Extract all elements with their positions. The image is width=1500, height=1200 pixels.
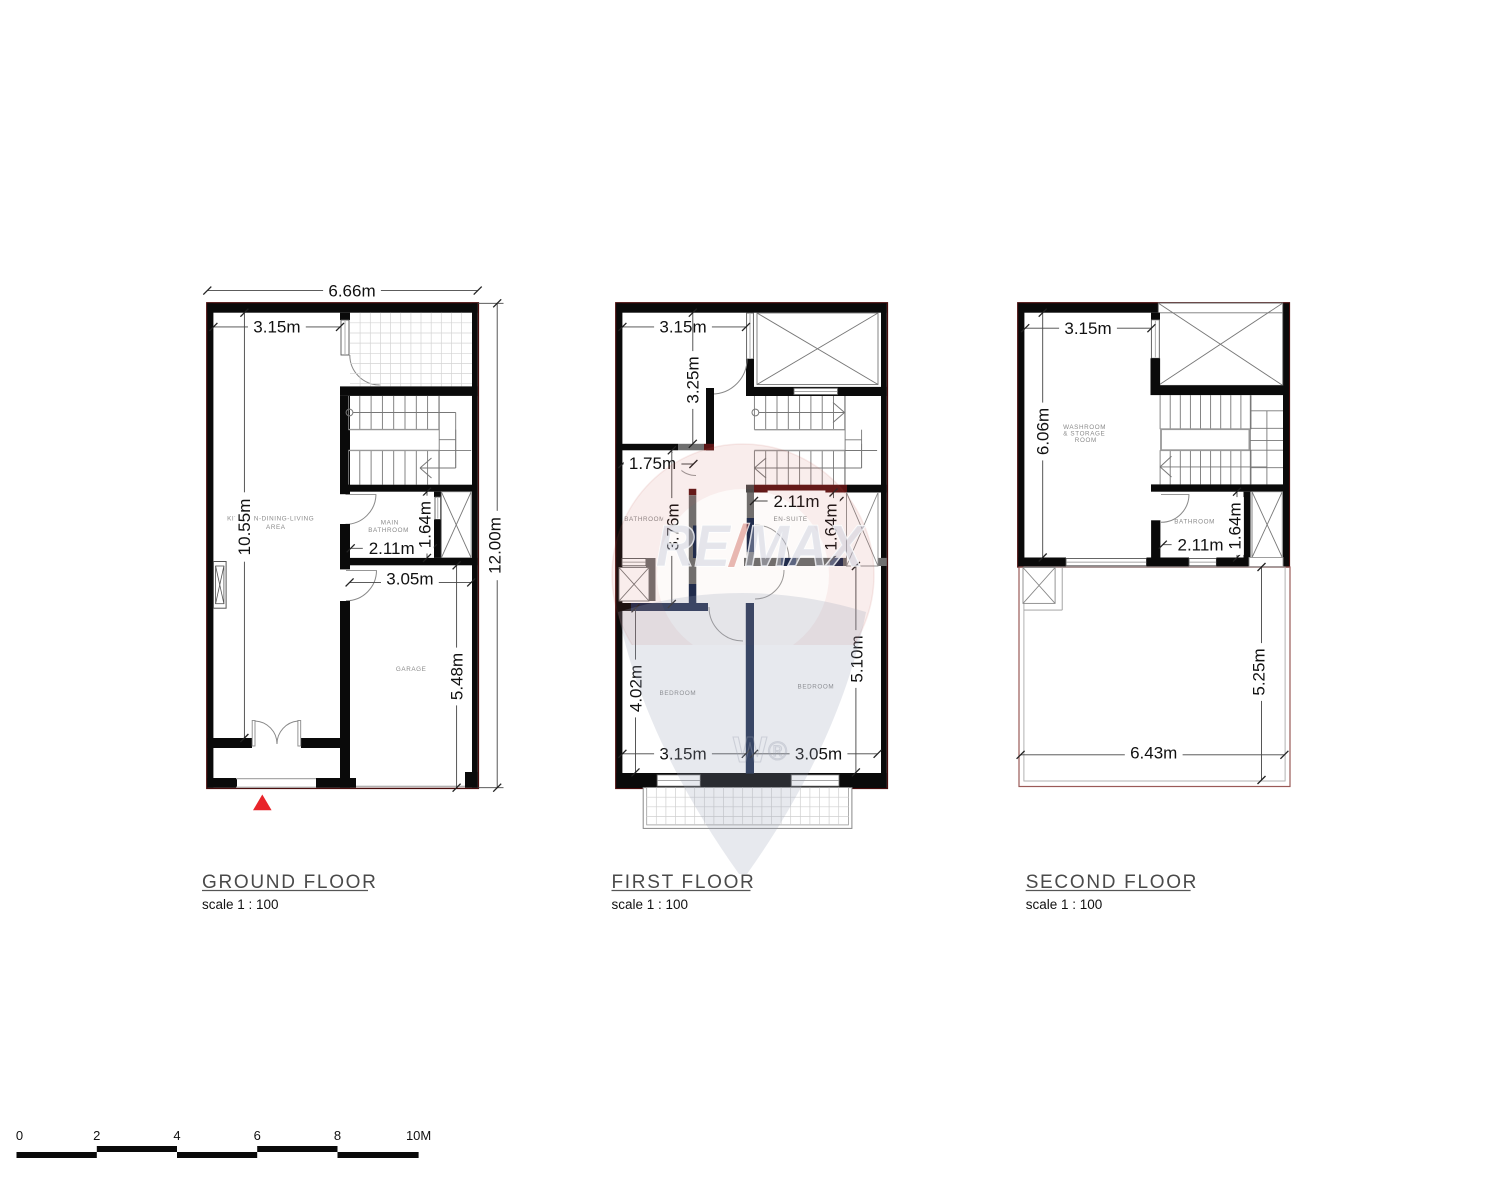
svg-text:RE/MAX: RE/MAX [656,514,866,579]
svg-text:4: 4 [173,1128,180,1143]
svg-text:10M: 10M [406,1128,431,1143]
svg-text:10.55m: 10.55m [235,499,254,556]
svg-text:6: 6 [254,1128,261,1143]
svg-text:8: 8 [334,1128,341,1143]
svg-text:2: 2 [93,1128,100,1143]
svg-text:1.64m: 1.64m [415,501,434,548]
svg-text:1.64m: 1.64m [1225,502,1244,549]
svg-text:AREA: AREA [266,524,286,531]
svg-text:2.11m: 2.11m [1178,536,1224,555]
svg-text:6.66m: 6.66m [328,281,375,300]
svg-text:6.43m: 6.43m [1130,743,1177,762]
svg-text:5.25m: 5.25m [1250,648,1269,695]
svg-text:FIRST FLOOR: FIRST FLOOR [612,872,756,893]
svg-text:BATHROOM: BATHROOM [368,527,409,534]
svg-text:12.00m: 12.00m [485,517,504,574]
svg-text:6.06m: 6.06m [1033,408,1052,455]
svg-text:SECOND FLOOR: SECOND FLOOR [1026,872,1198,893]
svg-text:GARAGE: GARAGE [396,666,427,673]
svg-text:BATHROOM: BATHROOM [1174,519,1215,526]
svg-text:GROUND FLOOR: GROUND FLOOR [202,872,378,893]
svg-text:scale 1 : 100: scale 1 : 100 [202,897,279,912]
svg-text:MAIN: MAIN [381,520,399,527]
svg-text:3.15m: 3.15m [1064,319,1111,338]
svg-text:3.15m: 3.15m [253,318,300,337]
svg-text:3.15m: 3.15m [659,318,706,337]
svg-text:scale 1 : 100: scale 1 : 100 [612,897,689,912]
svg-text:W: W [733,729,767,770]
svg-text:®: ® [768,736,787,766]
svg-text:3.25m: 3.25m [684,356,703,403]
svg-text:ROOM: ROOM [1075,437,1097,444]
svg-text:0: 0 [16,1128,23,1143]
svg-text:scale 1 : 100: scale 1 : 100 [1026,897,1103,912]
svg-text:3.05m: 3.05m [386,569,433,588]
svg-text:5.48m: 5.48m [447,653,466,700]
svg-text:2.11m: 2.11m [369,539,415,558]
